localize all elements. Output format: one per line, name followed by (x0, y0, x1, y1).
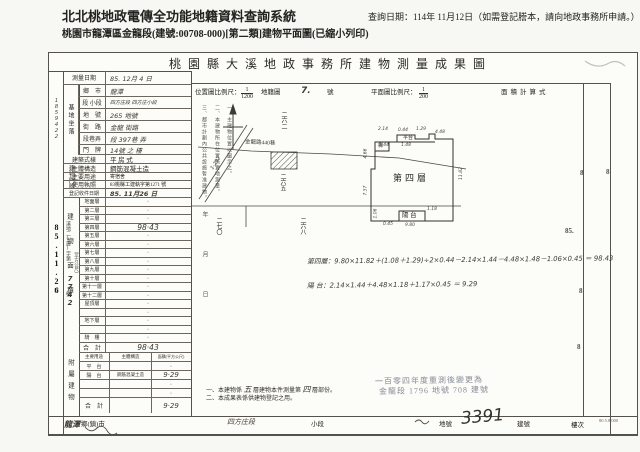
form-code: 80.5.8.000 (599, 419, 618, 424)
legend-line1: 一、本建物係 五 層建物本件測量第 四 層部份。 (206, 386, 336, 394)
legend-line1-pre: 一、本建物係 (206, 388, 242, 394)
plan-floor-label: 第四層 (393, 174, 429, 183)
parcel-number-mid: 二六五 (279, 173, 285, 191)
subject-parcel-hatch (271, 152, 297, 169)
legend-line1-post: 層部份。 (312, 388, 336, 394)
plan-dim: 4.66 (364, 148, 369, 158)
legend-line2: 二、本成果表係供建物登記之用。 (206, 396, 296, 402)
query-system-page: 北北桃地政電傳全功能地籍資料查詢系統 查詢日期：114年 11月12日（如需登記… (0, 0, 640, 452)
plan-dim: 1.29 (416, 127, 426, 132)
margin-mark: 8 (606, 168, 610, 176)
bottom-hand-town: 龍潭 (64, 421, 80, 429)
bottom-building-label: 建號 (517, 422, 530, 429)
plan-dim: 9.80 (405, 223, 415, 228)
pencil-mark (585, 61, 625, 66)
parcel-number-top: 二六二 (280, 111, 286, 129)
plan-dim: 0.45 (383, 222, 393, 227)
plan-dim: 11.82 (459, 167, 464, 180)
query-date: 查詢日期：114年 11月12日（如需登記謄本，請向地政事務所申請。） (368, 13, 640, 22)
survey-sheet: 桃 園 縣 大 溪 地 政 事 務 所 建 物 測 量 成 果 圖 位置圖比例尺… (48, 52, 638, 436)
plan-dim: 4.48 (435, 130, 445, 135)
plan-dim: 7.57 (364, 185, 369, 195)
blank-date-label: 年 月 日 (201, 211, 207, 311)
margin-mark: 8 (579, 287, 583, 295)
plan-dim: 2.14 (378, 127, 388, 132)
plan-balcony-label: 陽 台 (402, 213, 417, 220)
margin-mark: 8 (577, 343, 581, 351)
plan-dim: 1.06 (374, 208, 379, 218)
note-column: 一、主建物位置以圖示之。 (221, 105, 232, 235)
bottom-town-label: 鄉(鎮)市 (81, 422, 105, 429)
plan-dim: 0.44 (398, 128, 408, 133)
legend-line1-hand1: 五 (244, 385, 252, 394)
parcel-number-bottom-right: 二六八 (299, 217, 305, 235)
plan-terrace-label: 平台 (403, 136, 413, 141)
note-column: 二、本建物所在位置係實地測量。 (209, 105, 220, 235)
legend-line1-hand2: 四 (303, 385, 311, 394)
document-subtitle: 桃園市龍潭區金龍段(建號:00708-000)[第二類]建物平面圖(已縮小列印) (62, 30, 369, 40)
bottom-subsection-label: 小段 (311, 422, 324, 429)
legend-line1-mid: 層建物本件測量第 (253, 388, 301, 394)
bottom-floor-label: 樓次 (571, 423, 584, 430)
margin-mark: 8 (580, 169, 584, 177)
system-title: 北北桃地政電傳全功能地籍資料查詢系統 (62, 10, 296, 23)
plan-dim: 1.44 (379, 143, 389, 148)
bottom-hand-building-no: 3391 (460, 407, 505, 428)
plan-dim: 1.48 (401, 143, 411, 148)
signature-scrawl (85, 420, 429, 435)
plan-dim: 1.18 (427, 207, 437, 212)
drawing-layer (49, 53, 637, 435)
bottom-parcel-label: 地號 (439, 422, 452, 429)
margin-mark: 85. (565, 227, 574, 235)
bottom-hand-section: 四方庄段 (227, 419, 255, 426)
